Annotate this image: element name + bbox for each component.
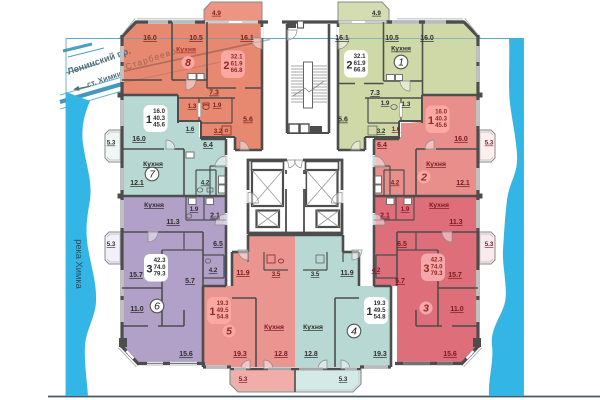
svg-text:12.1: 12.1	[456, 180, 470, 187]
svg-text:Кухня: Кухня	[264, 324, 284, 331]
svg-text:4: 4	[351, 326, 357, 338]
svg-text:7.3: 7.3	[209, 90, 219, 97]
svg-text:3.5: 3.5	[272, 271, 281, 278]
svg-text:5.6: 5.6	[243, 117, 253, 124]
svg-text:79.3: 79.3	[431, 270, 443, 277]
svg-text:5.6: 5.6	[338, 117, 348, 124]
svg-text:16.0: 16.0	[420, 35, 434, 42]
svg-text:5.3: 5.3	[107, 140, 116, 147]
svg-text:11.9: 11.9	[236, 270, 249, 277]
svg-text:4.9: 4.9	[372, 10, 381, 17]
svg-text:3: 3	[423, 303, 429, 315]
svg-text:1: 1	[398, 57, 404, 69]
svg-text:1: 1	[366, 306, 372, 318]
svg-text:Кухня: Кухня	[391, 46, 411, 53]
svg-text:5: 5	[226, 326, 232, 338]
svg-text:15.7: 15.7	[448, 272, 462, 279]
svg-text:4.2: 4.2	[209, 267, 218, 274]
svg-text:11.3: 11.3	[449, 219, 462, 226]
svg-text:66.8: 66.8	[231, 67, 243, 74]
svg-text:4.2: 4.2	[391, 180, 400, 187]
svg-text:4.2: 4.2	[201, 180, 210, 187]
svg-text:6.4: 6.4	[377, 142, 387, 149]
svg-text:5.3: 5.3	[239, 376, 248, 383]
svg-text:5.3: 5.3	[107, 241, 116, 248]
svg-text:4.9: 4.9	[212, 10, 221, 17]
svg-text:5.3: 5.3	[339, 376, 348, 383]
svg-text:12.8: 12.8	[304, 351, 318, 358]
svg-text:16.1: 16.1	[240, 35, 254, 42]
svg-text:6.5: 6.5	[397, 241, 407, 248]
svg-text:5.3: 5.3	[485, 241, 494, 248]
svg-text:1: 1	[428, 115, 434, 127]
svg-text:5.7: 5.7	[395, 278, 405, 285]
svg-text:11.0: 11.0	[130, 306, 143, 313]
svg-text:1.9: 1.9	[401, 206, 410, 213]
svg-text:Кухня: Кухня	[426, 161, 446, 168]
svg-text:12.1: 12.1	[130, 180, 144, 187]
svg-text:1.9: 1.9	[213, 102, 222, 109]
svg-text:2.1: 2.1	[210, 213, 220, 220]
svg-text:12.8: 12.8	[274, 351, 288, 358]
svg-text:2: 2	[420, 172, 427, 184]
svg-text:река Химка: река Химка	[74, 239, 84, 289]
svg-text:3: 3	[423, 263, 429, 275]
svg-text:15.6: 15.6	[443, 351, 457, 358]
svg-text:2: 2	[223, 60, 229, 72]
svg-text:16.0: 16.0	[143, 35, 157, 42]
svg-text:45.6: 45.6	[435, 122, 447, 129]
svg-text:6.5: 6.5	[213, 241, 223, 248]
svg-text:11.0: 11.0	[450, 306, 463, 313]
svg-text:66.8: 66.8	[354, 66, 366, 73]
svg-text:54.8: 54.8	[217, 313, 229, 320]
svg-text:2.1: 2.1	[380, 213, 390, 220]
svg-text:16.0: 16.0	[454, 136, 468, 143]
svg-text:6: 6	[154, 301, 160, 313]
svg-text:16.1: 16.1	[335, 35, 349, 42]
svg-text:5.7: 5.7	[185, 278, 195, 285]
svg-text:1.9: 1.9	[381, 100, 390, 107]
svg-text:Кухня: Кухня	[176, 47, 196, 54]
svg-text:Кухня: Кухня	[303, 324, 323, 331]
svg-text:4.2: 4.2	[372, 267, 381, 274]
svg-text:1: 1	[146, 114, 152, 126]
svg-text:3.2: 3.2	[377, 128, 386, 135]
svg-text:1.3: 1.3	[188, 103, 197, 110]
svg-text:2: 2	[346, 59, 352, 71]
svg-text:7.3: 7.3	[370, 90, 380, 97]
svg-text:8: 8	[185, 57, 191, 69]
svg-text:11.3: 11.3	[166, 219, 179, 226]
svg-text:1: 1	[209, 306, 215, 318]
svg-text:6.4: 6.4	[203, 142, 213, 149]
svg-text:15.7: 15.7	[129, 272, 143, 279]
svg-text:Кухня: Кухня	[144, 202, 164, 209]
svg-text:19.3: 19.3	[233, 351, 247, 358]
svg-text:Кухня: Кухня	[429, 202, 449, 209]
svg-text:10.5: 10.5	[385, 35, 399, 42]
svg-text:11.9: 11.9	[340, 270, 353, 277]
svg-text:1.3: 1.3	[402, 101, 411, 108]
svg-text:10.5: 10.5	[189, 35, 203, 42]
svg-text:5.3: 5.3	[485, 140, 494, 147]
svg-text:16.0: 16.0	[132, 136, 146, 143]
svg-text:1.6: 1.6	[186, 126, 195, 133]
svg-text:3.2: 3.2	[214, 128, 223, 135]
svg-text:3.5: 3.5	[311, 271, 320, 278]
svg-text:45.6: 45.6	[153, 121, 165, 128]
svg-text:54.8: 54.8	[374, 313, 386, 320]
svg-text:1.6: 1.6	[392, 126, 401, 133]
svg-text:1.9: 1.9	[190, 206, 199, 213]
svg-text:3: 3	[146, 263, 152, 275]
svg-text:79.3: 79.3	[154, 270, 166, 277]
svg-text:15.6: 15.6	[179, 351, 193, 358]
svg-text:19.3: 19.3	[373, 351, 387, 358]
